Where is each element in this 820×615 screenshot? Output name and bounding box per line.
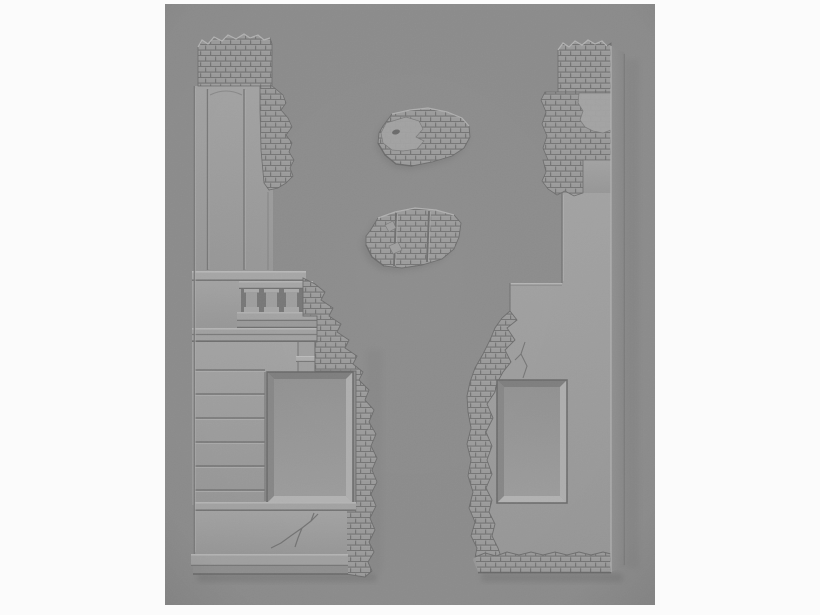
terrain-photo	[165, 4, 655, 605]
photo-frame	[165, 4, 655, 605]
page	[0, 0, 820, 615]
film-grain	[165, 4, 655, 605]
